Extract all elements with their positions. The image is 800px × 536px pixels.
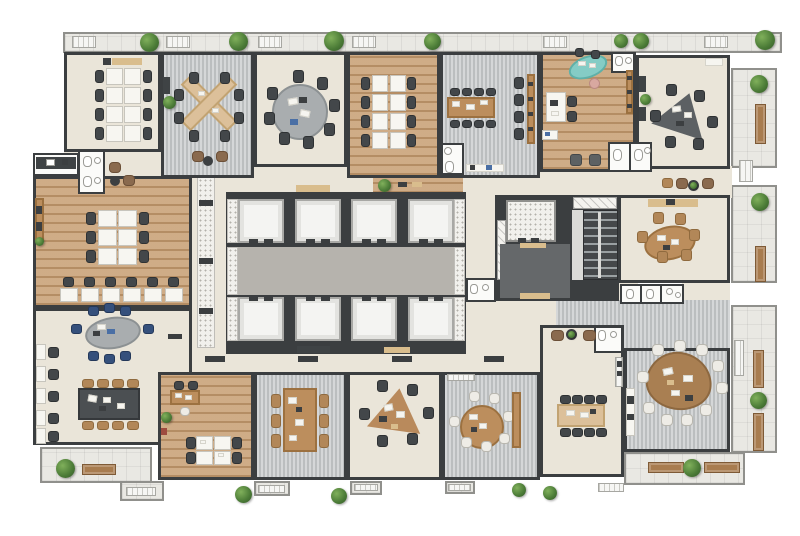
office-chair	[271, 394, 281, 408]
toilet	[634, 149, 643, 161]
office-chair	[361, 134, 370, 147]
office-chair	[86, 250, 96, 263]
office-chair	[82, 379, 94, 388]
plant	[140, 33, 159, 52]
office-chair	[88, 306, 99, 316]
plant	[543, 486, 557, 500]
side-table	[110, 176, 120, 186]
elevator-cabin	[295, 297, 341, 341]
office-chair	[637, 371, 649, 383]
kitchen-item	[62, 159, 68, 165]
stair-rail	[598, 212, 601, 278]
office-chair	[293, 70, 304, 83]
elevator-cabin	[408, 297, 454, 341]
stair-landing	[572, 210, 583, 280]
desk	[36, 366, 46, 382]
bath-divider	[660, 284, 662, 304]
paper	[671, 390, 680, 396]
office-chair	[514, 128, 524, 140]
office-chair	[567, 111, 577, 122]
pouf	[589, 78, 600, 89]
paper	[672, 105, 682, 112]
office-chair	[450, 88, 460, 96]
office-chair	[104, 303, 115, 313]
office-chair	[591, 50, 600, 59]
office-chair	[319, 414, 329, 428]
office-chair	[189, 130, 199, 142]
plant	[683, 459, 701, 477]
shaft-hatch	[573, 197, 617, 209]
office-chair	[514, 77, 524, 89]
kitchen-counter	[36, 157, 76, 169]
office-chair	[499, 433, 510, 444]
plant	[331, 488, 347, 504]
guest-chair	[589, 154, 601, 166]
bench	[704, 462, 740, 473]
office-chair	[186, 452, 196, 464]
desk	[36, 428, 46, 444]
office-chair	[461, 437, 472, 448]
lounge-chair	[702, 178, 714, 189]
desk	[124, 68, 141, 85]
office-chair	[279, 132, 290, 145]
office-chair	[560, 395, 571, 404]
office-chair	[407, 115, 416, 128]
office-chair	[596, 395, 607, 404]
office-chair	[48, 347, 59, 358]
elevator-door	[321, 239, 330, 243]
ac-unit	[166, 36, 190, 48]
office-chair	[449, 416, 460, 427]
office-chair	[317, 77, 328, 90]
elevator-cabin	[351, 297, 397, 341]
shelf-item	[617, 361, 622, 367]
laptop	[379, 416, 387, 422]
office-chair	[189, 72, 199, 84]
shelf-item	[36, 222, 42, 231]
office-chair	[48, 369, 59, 380]
desk	[106, 106, 123, 123]
office-chair	[303, 136, 314, 149]
office-chair	[127, 421, 139, 430]
office-chair	[489, 393, 500, 404]
office-chair	[407, 96, 416, 109]
elevator-lobby	[238, 247, 454, 295]
plant	[424, 33, 441, 50]
office-chair	[143, 324, 154, 334]
office-chair	[267, 87, 278, 100]
office-chair	[48, 431, 59, 442]
office-chair	[220, 72, 230, 84]
office-chair	[407, 134, 416, 147]
plant	[161, 412, 172, 423]
shaft-panel	[227, 199, 238, 243]
credenza-item	[666, 199, 675, 205]
sink	[94, 177, 101, 184]
laptop	[685, 395, 693, 401]
doormat	[484, 356, 504, 362]
elevator-door	[264, 239, 273, 243]
paper	[683, 375, 693, 382]
toilet	[83, 156, 92, 167]
ac-unit	[72, 36, 96, 48]
ac-unit	[734, 340, 744, 376]
office-chair	[377, 380, 388, 392]
elevator-door	[321, 297, 330, 301]
office-chair	[474, 88, 484, 96]
office-chair	[666, 84, 677, 96]
desk	[372, 75, 388, 92]
console	[512, 392, 521, 448]
plant	[640, 94, 651, 105]
exec-desk	[546, 92, 566, 122]
office-chair	[71, 324, 82, 334]
office-chair	[120, 306, 131, 316]
office-chair	[168, 277, 179, 287]
cabinet-item	[103, 58, 111, 65]
elevator-door	[362, 239, 371, 243]
desk	[196, 451, 213, 465]
desk	[118, 210, 137, 227]
office-chair	[104, 354, 115, 364]
paper	[288, 397, 297, 404]
desk	[36, 410, 46, 426]
ac-unit	[352, 36, 376, 48]
desk	[372, 94, 388, 111]
office-chair	[596, 428, 607, 437]
sink	[666, 288, 673, 295]
desk	[390, 94, 406, 111]
office-chair	[319, 434, 329, 448]
ac-unit	[126, 487, 156, 496]
doormat	[520, 293, 550, 299]
lounge-chair	[662, 178, 673, 188]
doormat	[205, 356, 225, 362]
paper	[684, 112, 692, 118]
elevator-door	[419, 297, 428, 301]
elevator-door	[377, 297, 386, 301]
elevator-door	[306, 239, 315, 243]
office-chair	[514, 94, 524, 106]
office-chair	[361, 115, 370, 128]
toilet	[598, 330, 606, 341]
paper	[667, 380, 674, 385]
toilet	[83, 176, 92, 187]
credenza	[447, 374, 475, 381]
office-chair	[95, 108, 104, 121]
office-chair	[681, 249, 692, 261]
ac-unit	[258, 36, 282, 48]
office-chair	[319, 394, 329, 408]
office-chair	[361, 77, 370, 90]
sink	[675, 292, 681, 298]
service-elevator	[506, 200, 556, 242]
toilet	[470, 284, 478, 294]
office-chair	[572, 395, 583, 404]
laptop	[299, 97, 307, 103]
office-chair	[88, 351, 99, 361]
doormat	[298, 356, 318, 362]
office-chair	[139, 250, 149, 263]
desk	[124, 106, 141, 123]
paper	[198, 91, 205, 96]
desk	[165, 288, 183, 302]
office-chair	[143, 70, 152, 83]
side-table	[203, 156, 213, 166]
desk	[372, 132, 388, 149]
office-chair	[486, 120, 496, 128]
office-chair	[48, 413, 59, 424]
ac-unit	[354, 484, 378, 491]
office-chair	[86, 212, 96, 225]
office-chair	[86, 231, 96, 244]
desk	[106, 68, 123, 85]
pantry-item	[412, 182, 422, 187]
shelf-item	[528, 97, 533, 101]
cabinet	[639, 107, 646, 121]
bathroom-nw	[78, 150, 105, 194]
sink	[610, 331, 617, 338]
laptop	[99, 406, 106, 411]
elevator-door	[306, 297, 315, 301]
elevator-cabin	[351, 199, 397, 243]
office-chair	[48, 391, 59, 402]
office-chair	[232, 452, 242, 464]
lounge-chair	[123, 175, 135, 186]
shelf-item	[627, 76, 632, 80]
paper	[480, 100, 488, 105]
elevator-door	[531, 238, 539, 242]
office-chair	[407, 77, 416, 90]
office-chair	[560, 428, 571, 437]
office-chair	[174, 89, 184, 101]
office-chair	[462, 120, 472, 128]
lounge-chair	[551, 330, 564, 341]
office-chair	[584, 395, 595, 404]
lounge-chair	[676, 178, 688, 189]
shelf-item	[36, 206, 42, 214]
office-chair	[450, 120, 460, 128]
office-chair	[514, 111, 524, 123]
kitchen-sink	[46, 159, 55, 166]
desk	[390, 113, 406, 130]
bench	[648, 462, 684, 473]
cabinet	[705, 58, 723, 66]
office-floor-plan	[0, 0, 800, 536]
elevator-cabin	[408, 199, 454, 243]
toilet	[646, 289, 654, 299]
shelf-item	[528, 127, 533, 131]
laptop	[471, 427, 477, 432]
desk	[106, 125, 123, 142]
plant	[324, 31, 344, 51]
plant	[568, 331, 575, 338]
office-chair	[665, 136, 676, 148]
paper	[289, 435, 297, 441]
desk	[36, 388, 46, 404]
elevator-door	[518, 238, 526, 242]
office-chair	[143, 108, 152, 121]
paper	[295, 419, 304, 426]
bath-divider	[640, 284, 642, 304]
paper	[396, 411, 405, 418]
office-chair	[469, 391, 480, 402]
plant	[235, 486, 252, 503]
paper	[200, 440, 206, 444]
office-chair	[95, 127, 104, 140]
office-chair	[271, 414, 281, 428]
paper	[671, 239, 679, 245]
office-chair	[674, 340, 686, 352]
plant	[35, 237, 44, 246]
paper	[212, 108, 219, 113]
desk	[106, 87, 123, 104]
console	[297, 346, 330, 353]
desk	[60, 288, 78, 302]
paper	[566, 410, 575, 416]
sink	[644, 147, 651, 154]
office-chair	[329, 99, 340, 112]
lounge-chair	[216, 151, 228, 162]
desk	[98, 229, 117, 246]
office-chair	[84, 277, 95, 287]
doormat	[199, 308, 213, 314]
elevator-door	[434, 297, 443, 301]
bath-divider	[629, 142, 631, 172]
doormat	[384, 347, 410, 353]
cabinet	[112, 58, 142, 65]
plant	[56, 459, 75, 478]
pantry-item	[398, 182, 407, 187]
office-chair	[324, 123, 335, 136]
paper	[103, 397, 111, 403]
paper	[175, 393, 182, 398]
elevator-door	[362, 297, 371, 301]
bench	[755, 104, 766, 144]
shelf-item	[528, 112, 533, 116]
paper	[97, 324, 106, 330]
corridor-right-2	[682, 282, 730, 302]
office-chair	[486, 88, 496, 96]
plant	[378, 179, 391, 192]
ac-unit	[258, 485, 285, 493]
office-chair	[139, 212, 149, 225]
office-chair	[377, 435, 388, 447]
desk	[144, 288, 162, 302]
office-chair	[271, 434, 281, 448]
office-chair	[474, 120, 484, 128]
office-chair	[661, 414, 673, 426]
desk	[81, 288, 99, 302]
desk	[98, 210, 117, 227]
office-chair	[82, 421, 94, 430]
cabinet-item	[161, 428, 167, 435]
desk	[214, 436, 231, 450]
desk	[390, 132, 406, 149]
office-chair	[407, 384, 418, 396]
doormat	[520, 243, 546, 248]
sink	[94, 157, 101, 164]
plant	[750, 75, 768, 93]
elevator-cabin	[295, 199, 341, 243]
office-chair	[97, 379, 109, 388]
office-chair	[650, 110, 661, 122]
shaft-panel	[454, 247, 465, 295]
ac-unit	[448, 484, 471, 491]
office-chair	[653, 212, 664, 224]
office-chair	[95, 70, 104, 83]
plant	[614, 34, 628, 48]
sink	[482, 284, 489, 291]
office-chair	[462, 88, 472, 96]
desk	[372, 113, 388, 130]
credenza-item	[470, 165, 475, 170]
sideboard	[163, 77, 170, 94]
office-chair	[147, 277, 158, 287]
doormat	[168, 334, 182, 339]
sink	[625, 57, 632, 64]
bench	[753, 413, 764, 451]
office-chair	[643, 402, 655, 414]
paper	[290, 119, 298, 125]
office-chair	[637, 231, 648, 243]
paper	[87, 394, 97, 402]
paper	[551, 111, 559, 116]
paper	[452, 101, 460, 107]
bench	[753, 350, 764, 388]
toilet	[445, 161, 454, 173]
guest-chair	[570, 154, 582, 166]
plant	[750, 392, 767, 409]
kitchen-item	[627, 414, 634, 420]
shelf-item	[528, 82, 533, 86]
desk	[118, 229, 137, 246]
shaft-panel	[454, 199, 465, 243]
paper	[580, 412, 589, 418]
office-chair	[143, 89, 152, 102]
plant	[512, 483, 526, 497]
office-chair	[112, 421, 124, 430]
laptop	[663, 245, 670, 250]
bench	[82, 464, 116, 475]
office-chair	[567, 96, 577, 107]
sink	[444, 147, 452, 155]
shaft-panel	[227, 247, 238, 295]
office-chair	[681, 414, 693, 426]
desk	[123, 288, 141, 302]
paper	[545, 132, 550, 136]
office-chair	[584, 428, 595, 437]
desk	[118, 248, 137, 265]
shelf-item	[617, 371, 622, 376]
paper	[657, 235, 666, 241]
laptop	[93, 331, 100, 336]
paper	[218, 453, 224, 457]
shelf-item	[627, 90, 632, 94]
laptop	[296, 407, 302, 412]
office-chair	[652, 344, 664, 356]
paper	[466, 104, 475, 110]
office-chair	[689, 229, 700, 241]
laptop	[550, 100, 558, 106]
office-chair	[174, 381, 184, 390]
office-chair	[234, 112, 244, 124]
laptop	[590, 409, 596, 414]
plant	[633, 33, 649, 49]
elevator-door	[419, 239, 428, 243]
office-chair	[120, 351, 131, 361]
plant	[229, 32, 248, 51]
